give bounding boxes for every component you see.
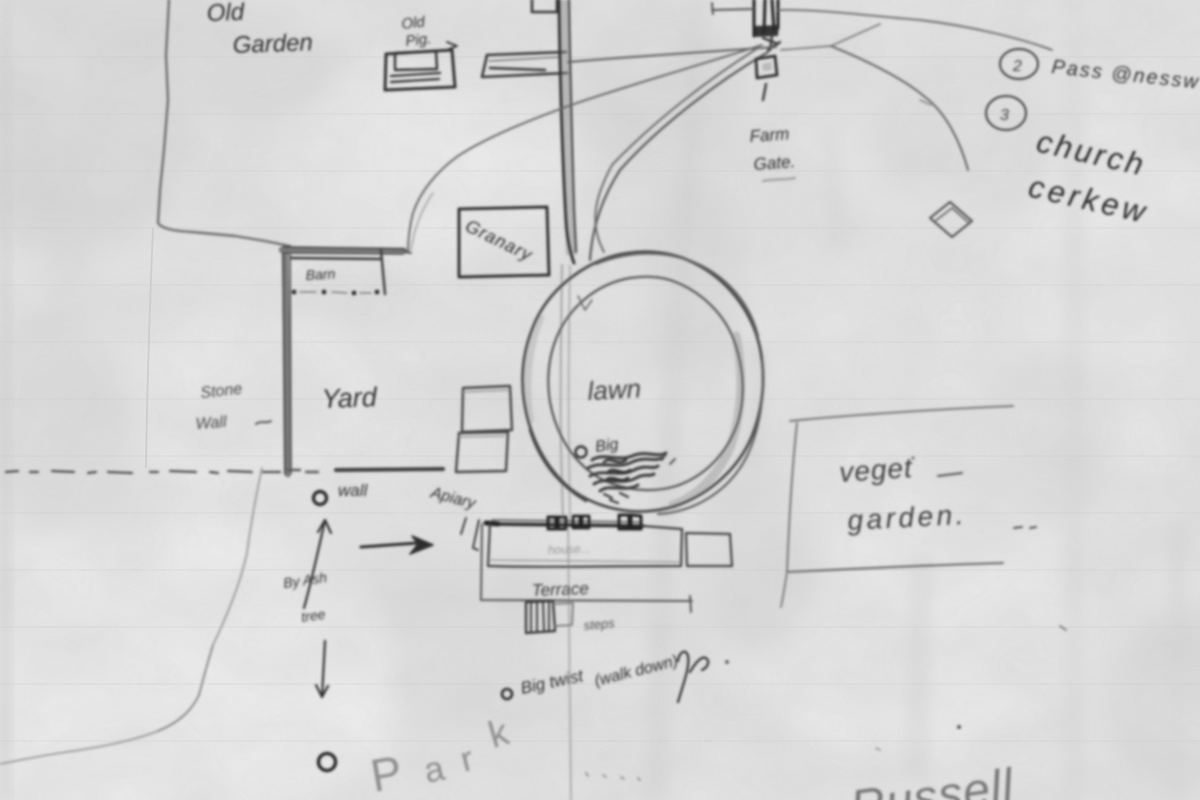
svg-text:veget: veget [838,452,914,488]
svg-text:3: 3 [1000,107,1009,124]
svg-text:Gate.: Gate. [753,152,796,174]
svg-text:house...: house... [548,542,591,557]
svg-text:garden.: garden. [847,499,968,536]
svg-text:Old: Old [401,14,427,33]
svg-text:Old: Old [206,0,245,27]
svg-text:Garden: Garden [232,29,313,59]
svg-text:Terrace: Terrace [531,579,589,600]
svg-text:tree: tree [300,606,326,625]
svg-text:Barn: Barn [305,265,336,283]
svg-text:Pig.: Pig. [405,30,432,50]
svg-text:Big: Big [594,436,619,456]
svg-text:wall: wall [338,481,369,500]
svg-text:Yard: Yard [321,382,378,414]
svg-text:lawn: lawn [587,373,642,406]
svg-text:Farm: Farm [749,124,790,146]
svg-text:steps: steps [583,615,616,633]
svg-text:Wall: Wall [195,414,227,433]
svg-text:2: 2 [1012,58,1022,75]
